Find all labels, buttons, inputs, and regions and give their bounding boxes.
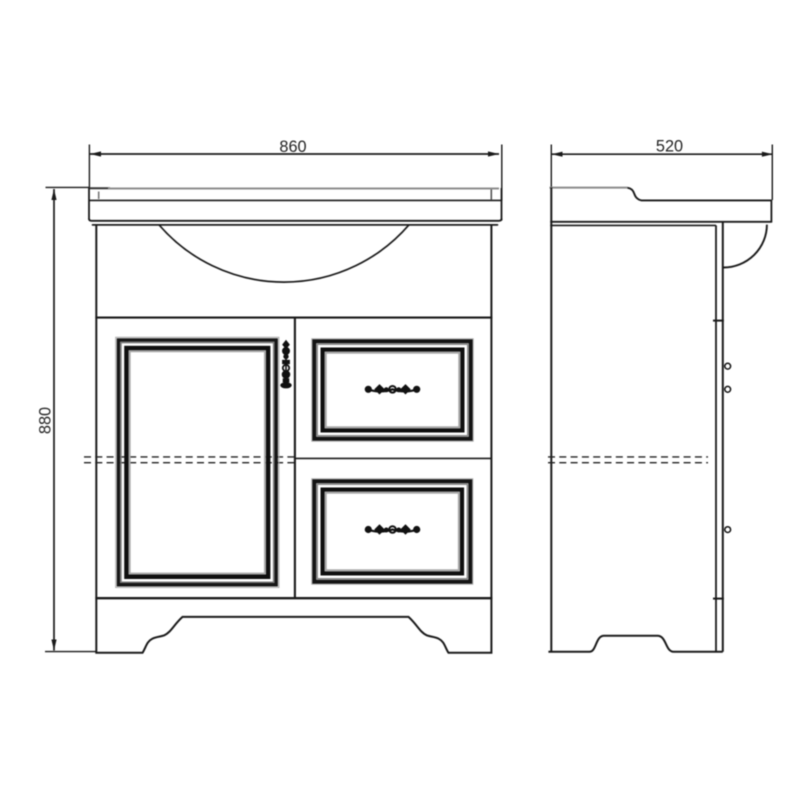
svg-text:860: 860 [279, 138, 306, 156]
svg-text:880: 880 [37, 407, 55, 434]
svg-text:520: 520 [656, 137, 683, 155]
